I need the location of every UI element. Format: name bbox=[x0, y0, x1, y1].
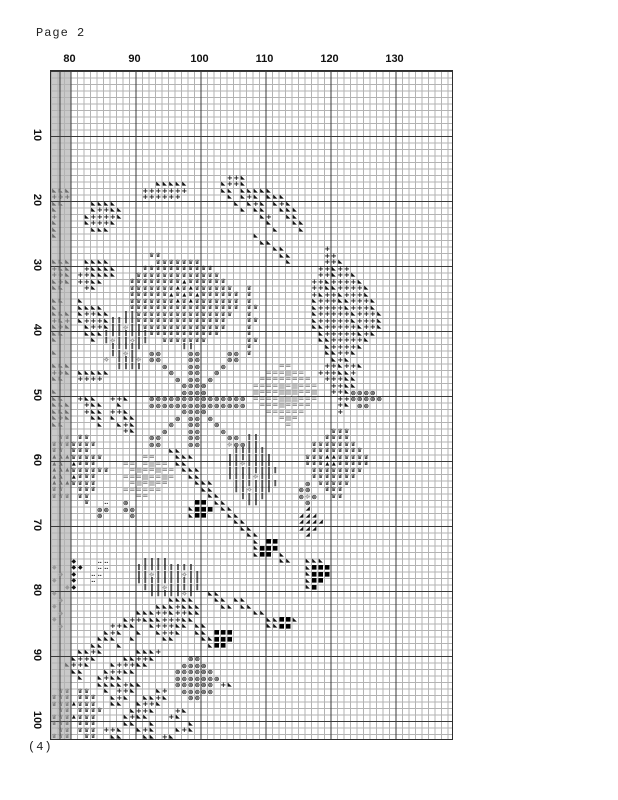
corner-triangle-stitch: ◣ bbox=[90, 396, 97, 403]
plus-stitch: + bbox=[324, 260, 331, 267]
crown-stitch: ♛ bbox=[305, 455, 312, 462]
corner-triangle-stitch: ◣ bbox=[149, 624, 156, 631]
plus-stitch: + bbox=[142, 188, 149, 195]
plus-stitch: + bbox=[350, 286, 357, 293]
ring-stitch: ⊚ bbox=[175, 396, 182, 403]
plus-stitch: + bbox=[77, 279, 84, 286]
crown-stitch: ♛ bbox=[188, 260, 195, 267]
corner-triangle-stitch: ◣ bbox=[188, 611, 195, 618]
corner-triangle-stitch: ◣ bbox=[129, 708, 136, 715]
corner-triangle-stitch: ◣ bbox=[149, 695, 156, 702]
hatched-square-stitch: ▦ bbox=[311, 390, 318, 397]
corner-triangle-stitch: ◣ bbox=[77, 370, 84, 377]
ring-stitch: ⊚ bbox=[194, 409, 201, 416]
equals-stitch: = bbox=[298, 396, 305, 403]
plus-stitch: + bbox=[344, 312, 351, 319]
double-bar-stitch: ‖ bbox=[253, 442, 260, 449]
crown-stitch: ♛ bbox=[168, 331, 175, 338]
solid-triangle-stitch: ▲ bbox=[194, 292, 201, 299]
corner-triangle-stitch: ◣ bbox=[181, 708, 188, 715]
corner-triangle-stitch: ◣ bbox=[311, 325, 318, 332]
corner-triangle-stitch: ◣ bbox=[331, 286, 338, 293]
ring-stitch: ⊚ bbox=[129, 513, 136, 520]
crown-stitch: ♛ bbox=[58, 695, 65, 702]
double-bar-stitch: ‖ bbox=[194, 585, 201, 592]
plus-stitch: + bbox=[116, 689, 123, 696]
corner-triangle-stitch: ◣ bbox=[103, 689, 110, 696]
ring-stitch: ⊚ bbox=[227, 435, 234, 442]
crown-stitch: ♛ bbox=[64, 708, 71, 715]
crown-stitch: ♛ bbox=[84, 448, 91, 455]
crown-stitch: ♛ bbox=[84, 689, 91, 696]
double-bar-stitch: ‖ bbox=[253, 461, 260, 468]
corner-triangle-stitch: ◣ bbox=[253, 533, 260, 540]
plus-stitch: + bbox=[123, 689, 130, 696]
crown-stitch: ♛ bbox=[337, 455, 344, 462]
double-bar-stitch: ‖ bbox=[266, 481, 273, 488]
crown-stitch: ♛ bbox=[58, 708, 65, 715]
corner-triangle-stitch: ◣ bbox=[51, 396, 58, 403]
corner-triangle-stitch: ◣ bbox=[175, 182, 182, 189]
crown-stitch: ♛ bbox=[201, 292, 208, 299]
crown-stitch: ♛ bbox=[155, 325, 162, 332]
corner-triangle-stitch: ◣ bbox=[110, 416, 117, 423]
corner-triangle-stitch: ◣ bbox=[259, 188, 266, 195]
ring-stitch: ⊚ bbox=[188, 689, 195, 696]
corner-triangle-stitch: ◣ bbox=[272, 247, 279, 254]
crown-stitch: ♛ bbox=[51, 721, 58, 728]
crown-stitch: ♛ bbox=[181, 338, 188, 345]
sun-stitch: ☼ bbox=[136, 357, 143, 364]
plus-stitch: + bbox=[357, 338, 364, 345]
solid-triangle-stitch: ▲ bbox=[181, 292, 188, 299]
corner-triangle-stitch: ◣ bbox=[201, 481, 208, 488]
crown-stitch: ♛ bbox=[51, 448, 58, 455]
corner-triangle-stitch: ◣ bbox=[71, 656, 78, 663]
row-label: 80 bbox=[31, 584, 43, 596]
corner-triangle-stitch: ◣ bbox=[298, 221, 305, 228]
crown-stitch: ♛ bbox=[337, 474, 344, 481]
solid-triangle-stitch: ▲ bbox=[188, 299, 195, 306]
corner-triangle-stitch: ◣ bbox=[51, 260, 58, 267]
crown-stitch: ♛ bbox=[201, 286, 208, 293]
corner-triangle-stitch: ◣ bbox=[220, 182, 227, 189]
double-bar-stitch: ‖ bbox=[155, 565, 162, 572]
corner-triangle-stitch: ◣ bbox=[149, 734, 156, 741]
gray-diamond-stitch: ◆ bbox=[58, 598, 65, 605]
corner-triangle-stitch: ◣ bbox=[227, 507, 234, 514]
corner-triangle-stitch: ◣ bbox=[64, 403, 71, 410]
equals-stitch: = bbox=[266, 409, 273, 416]
corner-triangle-stitch: ◣ bbox=[77, 305, 84, 312]
equals-stitch: = bbox=[253, 383, 260, 390]
double-bar-stitch: ‖ bbox=[129, 357, 136, 364]
corner-triangle-stitch: ◣ bbox=[331, 357, 338, 364]
plus-stitch: + bbox=[318, 266, 325, 273]
ring-stitch: ⊚ bbox=[350, 390, 357, 397]
corner-triangle-stitch: ◣ bbox=[123, 715, 130, 722]
corner-triangle-stitch: ◣ bbox=[266, 188, 273, 195]
crown-stitch: ♛ bbox=[207, 286, 214, 293]
plus-stitch: + bbox=[162, 617, 169, 624]
corner-triangle-stitch: ◣ bbox=[259, 240, 266, 247]
corner-triangle-stitch: ◣ bbox=[318, 331, 325, 338]
plus-stitch: + bbox=[337, 305, 344, 312]
plus-stitch: + bbox=[344, 396, 351, 403]
plus-stitch: + bbox=[58, 325, 65, 332]
plus-stitch: + bbox=[116, 409, 123, 416]
corner-triangle-stitch: ◣ bbox=[116, 728, 123, 735]
corner-triangle-stitch: ◣ bbox=[155, 689, 162, 696]
double-bar-stitch: ‖ bbox=[168, 585, 175, 592]
gray-diamond-stitch: ◆ bbox=[51, 617, 58, 624]
double-bar-stitch: ‖ bbox=[110, 351, 117, 358]
crown-stitch: ♛ bbox=[331, 429, 338, 436]
plus-stitch: + bbox=[77, 656, 84, 663]
crown-stitch: ♛ bbox=[97, 468, 104, 475]
crown-stitch: ♛ bbox=[305, 461, 312, 468]
ring-stitch: ⊚ bbox=[220, 403, 227, 410]
black-square-stitch: ■ bbox=[259, 552, 266, 559]
hatched-square-stitch: ▦ bbox=[285, 416, 292, 423]
plus-stitch: + bbox=[344, 266, 351, 273]
corner-triangle-stitch: ◣ bbox=[142, 715, 149, 722]
ring-stitch: ⊚ bbox=[220, 429, 227, 436]
plus-stitch: + bbox=[129, 617, 136, 624]
corner-triangle2-stitch: ◢ bbox=[298, 520, 305, 527]
sun-stitch: ☼ bbox=[227, 442, 234, 449]
solid-triangle-stitch: ▲ bbox=[168, 292, 175, 299]
corner-triangle-stitch: ◣ bbox=[324, 279, 331, 286]
crown-stitch: ♛ bbox=[51, 442, 58, 449]
corner-triangle-stitch: ◣ bbox=[285, 208, 292, 215]
plus-stitch: + bbox=[324, 370, 331, 377]
corner-triangle-stitch: ◣ bbox=[116, 734, 123, 741]
crown-stitch: ♛ bbox=[188, 338, 195, 345]
ring-stitch: ⊚ bbox=[194, 357, 201, 364]
plus-stitch: + bbox=[97, 325, 104, 332]
equals-stitch: = bbox=[129, 487, 136, 494]
crown-stitch: ♛ bbox=[64, 689, 71, 696]
corner-triangle-stitch: ◣ bbox=[97, 643, 104, 650]
corner-triangle-stitch: ◣ bbox=[240, 208, 247, 215]
ring-stitch: ⊚ bbox=[97, 513, 104, 520]
corner-triangle-stitch: ◣ bbox=[272, 201, 279, 208]
corner-triangle-stitch: ◣ bbox=[227, 195, 234, 202]
crown-stitch: ♛ bbox=[246, 351, 253, 358]
plus-stitch: + bbox=[97, 377, 104, 384]
crown-stitch: ♛ bbox=[168, 260, 175, 267]
corner-triangle-stitch: ◣ bbox=[305, 572, 312, 579]
corner-triangle-stitch: ◣ bbox=[51, 299, 58, 306]
corner-triangle-stitch: ◣ bbox=[305, 585, 312, 592]
equals-stitch: = bbox=[123, 487, 130, 494]
corner-triangle-stitch: ◣ bbox=[168, 611, 175, 618]
ring-stitch: ⊚ bbox=[194, 370, 201, 377]
plus-stitch: + bbox=[84, 318, 91, 325]
corner-triangle-stitch: ◣ bbox=[136, 682, 143, 689]
crown-stitch: ♛ bbox=[90, 734, 97, 741]
row-label: 100 bbox=[31, 711, 43, 729]
solid-triangle-stitch: ▲ bbox=[175, 286, 182, 293]
plus-stitch: + bbox=[337, 357, 344, 364]
crown-stitch: ♛ bbox=[207, 305, 214, 312]
double-bar-stitch: ‖ bbox=[142, 559, 149, 566]
ring-stitch: ⊚ bbox=[188, 663, 195, 670]
corner-triangle-stitch: ◣ bbox=[194, 630, 201, 637]
corner-triangle-stitch: ◣ bbox=[110, 663, 117, 670]
ring-stitch: ⊚ bbox=[155, 442, 162, 449]
crown-stitch: ♛ bbox=[175, 338, 182, 345]
double-bar-stitch: ‖ bbox=[149, 591, 156, 598]
corner-triangle-stitch: ◣ bbox=[103, 266, 110, 273]
crown-stitch: ♛ bbox=[71, 448, 78, 455]
crown-stitch: ♛ bbox=[58, 435, 65, 442]
diamond-stitch: ◆ bbox=[71, 565, 78, 572]
corner-triangle-stitch: ◣ bbox=[175, 455, 182, 462]
crown-stitch: ♛ bbox=[51, 494, 58, 501]
corner-triangle-stitch: ◣ bbox=[123, 416, 130, 423]
plus-stitch: + bbox=[350, 364, 357, 371]
double-bar-stitch: ‖ bbox=[162, 591, 169, 598]
plus-stitch: + bbox=[155, 695, 162, 702]
corner-triangle-stitch: ◣ bbox=[110, 702, 117, 709]
corner-triangle-stitch: ◣ bbox=[207, 487, 214, 494]
equals-stitch: = bbox=[266, 390, 273, 397]
crown-stitch: ♛ bbox=[64, 721, 71, 728]
crown-stitch: ♛ bbox=[214, 325, 221, 332]
crown-stitch: ♛ bbox=[64, 435, 71, 442]
crown-stitch: ♛ bbox=[71, 468, 78, 475]
equals-stitch: = bbox=[279, 364, 286, 371]
equals-stitch: = bbox=[129, 461, 136, 468]
corner-triangle-stitch: ◣ bbox=[84, 221, 91, 228]
crown-stitch: ♛ bbox=[227, 286, 234, 293]
crown-stitch: ♛ bbox=[344, 468, 351, 475]
ring-stitch: ⊚ bbox=[357, 390, 364, 397]
corner-triangle-stitch: ◣ bbox=[331, 351, 338, 358]
crown-stitch: ♛ bbox=[136, 286, 143, 293]
crown-stitch: ♛ bbox=[214, 273, 221, 280]
corner-triangle-stitch: ◣ bbox=[324, 351, 331, 358]
plus-stitch: + bbox=[331, 299, 338, 306]
crown-stitch: ♛ bbox=[194, 325, 201, 332]
corner-triangle-stitch: ◣ bbox=[97, 422, 104, 429]
corner-triangle-stitch: ◣ bbox=[181, 617, 188, 624]
double-bar-stitch: ‖ bbox=[266, 455, 273, 462]
crown-stitch: ♛ bbox=[188, 318, 195, 325]
corner-triangle-stitch: ◣ bbox=[103, 682, 110, 689]
crown-stitch: ♛ bbox=[194, 305, 201, 312]
corner-triangle-stitch: ◣ bbox=[350, 312, 357, 319]
column-label: 100 bbox=[190, 53, 208, 65]
corner-triangle2-stitch: ◢ bbox=[298, 513, 305, 520]
plus-stitch: + bbox=[110, 214, 117, 221]
corner-triangle-stitch: ◣ bbox=[129, 637, 136, 644]
corner-triangle-stitch: ◣ bbox=[129, 721, 136, 728]
corner-triangle-stitch: ◣ bbox=[201, 637, 208, 644]
hatched-square-stitch: ▦ bbox=[292, 396, 299, 403]
corner-triangle-stitch: ◣ bbox=[90, 279, 97, 286]
column-label: 130 bbox=[385, 53, 403, 65]
double-bar-stitch: ‖ bbox=[259, 474, 266, 481]
ring-stitch: ⊚ bbox=[363, 403, 370, 410]
page-footer: (4) bbox=[28, 740, 53, 754]
corner-triangle-stitch: ◣ bbox=[253, 552, 260, 559]
double-bar-stitch: ‖ bbox=[136, 331, 143, 338]
crown-stitch: ♛ bbox=[227, 292, 234, 299]
corner-triangle-stitch: ◣ bbox=[116, 643, 123, 650]
plus-stitch: + bbox=[337, 396, 344, 403]
crown-stitch: ♛ bbox=[194, 331, 201, 338]
double-bar-stitch: ‖ bbox=[168, 578, 175, 585]
sun-stitch: ☼ bbox=[162, 585, 169, 592]
ring-stitch: ⊚ bbox=[129, 507, 136, 514]
corner-triangle-stitch: ◣ bbox=[370, 305, 377, 312]
double-bar-stitch: ‖ bbox=[188, 578, 195, 585]
ring-stitch: ⊚ bbox=[149, 435, 156, 442]
equals-stitch: = bbox=[272, 370, 279, 377]
equals-stitch: = bbox=[129, 481, 136, 488]
solid-triangle-stitch: ▲ bbox=[51, 481, 58, 488]
gray-diamond-stitch: ◆ bbox=[51, 578, 58, 585]
double-bar-stitch: ‖ bbox=[123, 318, 130, 325]
corner-triangle-stitch: ◣ bbox=[175, 598, 182, 605]
plus-stitch: + bbox=[331, 312, 338, 319]
plus-stitch: + bbox=[168, 715, 175, 722]
corner-triangle-stitch: ◣ bbox=[344, 305, 351, 312]
plus-stitch: + bbox=[344, 318, 351, 325]
corner-triangle-stitch: ◣ bbox=[272, 227, 279, 234]
double-bar-stitch: ‖ bbox=[253, 468, 260, 475]
plus-stitch: + bbox=[331, 377, 338, 384]
crown-stitch: ♛ bbox=[331, 474, 338, 481]
crown-stitch: ♛ bbox=[162, 299, 169, 306]
equals-stitch: = bbox=[129, 474, 136, 481]
corner-triangle-stitch: ◣ bbox=[253, 539, 260, 546]
ring-stitch: ⊚ bbox=[181, 403, 188, 410]
corner-triangle-stitch: ◣ bbox=[181, 604, 188, 611]
equals-stitch: = bbox=[259, 403, 266, 410]
crown-stitch: ♛ bbox=[77, 702, 84, 709]
ring-stitch: ⊚ bbox=[188, 422, 195, 429]
corner-triangle-stitch: ◣ bbox=[207, 637, 214, 644]
equals-stitch: = bbox=[259, 377, 266, 384]
crown-stitch: ♛ bbox=[357, 461, 364, 468]
plus-stitch: + bbox=[175, 604, 182, 611]
double-bar-stitch: ‖ bbox=[155, 572, 162, 579]
double-dot-stitch: ‥ bbox=[103, 565, 110, 572]
plus-stitch: + bbox=[357, 299, 364, 306]
plus-stitch: + bbox=[324, 305, 331, 312]
crown-stitch: ♛ bbox=[162, 318, 169, 325]
solid-triangle-stitch: ▲ bbox=[58, 468, 65, 475]
corner-triangle-stitch: ◣ bbox=[344, 299, 351, 306]
crown-stitch: ♛ bbox=[201, 325, 208, 332]
plus-stitch: + bbox=[337, 273, 344, 280]
double-dot-stitch: ‥ bbox=[90, 572, 97, 579]
crown-stitch: ♛ bbox=[194, 286, 201, 293]
corner-triangle-stitch: ◣ bbox=[90, 201, 97, 208]
corner-triangle-stitch: ◣ bbox=[285, 260, 292, 267]
corner-triangle-stitch: ◣ bbox=[266, 221, 273, 228]
equals-stitch: = bbox=[155, 461, 162, 468]
plus-stitch: + bbox=[324, 266, 331, 273]
corner-triangle-stitch: ◣ bbox=[214, 598, 221, 605]
crown-stitch: ♛ bbox=[246, 312, 253, 319]
double-bar-stitch: ‖ bbox=[194, 578, 201, 585]
ring-stitch: ⊚ bbox=[298, 494, 305, 501]
corner-triangle-stitch: ◣ bbox=[259, 201, 266, 208]
corner-triangle-stitch: ◣ bbox=[188, 721, 195, 728]
crown-stitch: ♛ bbox=[331, 481, 338, 488]
crown-stitch: ♛ bbox=[64, 442, 71, 449]
corner-triangle-stitch: ◣ bbox=[370, 331, 377, 338]
equals-stitch: = bbox=[168, 468, 175, 475]
ring-stitch: ⊚ bbox=[194, 663, 201, 670]
corner-triangle-stitch: ◣ bbox=[90, 266, 97, 273]
corner-triangle-stitch: ◣ bbox=[298, 227, 305, 234]
corner-triangle-stitch: ◣ bbox=[51, 416, 58, 423]
crown-stitch: ♛ bbox=[357, 455, 364, 462]
gray-diamond-stitch: ◆ bbox=[58, 624, 65, 631]
double-bar-stitch: ‖ bbox=[259, 468, 266, 475]
crown-stitch: ♛ bbox=[181, 273, 188, 280]
hatched-square-stitch: ▦ bbox=[285, 390, 292, 397]
black-square-stitch: ■ bbox=[318, 578, 325, 585]
plus-stitch: + bbox=[58, 273, 65, 280]
corner-triangle-stitch: ◣ bbox=[103, 273, 110, 280]
crown-stitch: ♛ bbox=[188, 279, 195, 286]
crown-stitch: ♛ bbox=[142, 286, 149, 293]
ring-stitch: ⊚ bbox=[227, 403, 234, 410]
corner-triangle-stitch: ◣ bbox=[337, 364, 344, 371]
black-square-stitch: ■ bbox=[201, 513, 208, 520]
plus-stitch: + bbox=[103, 208, 110, 215]
plus-stitch: + bbox=[337, 286, 344, 293]
double-dot-stitch: ‥ bbox=[97, 559, 104, 566]
double-bar-stitch: ‖ bbox=[168, 591, 175, 598]
plus-stitch: + bbox=[279, 201, 286, 208]
plus-stitch: + bbox=[337, 409, 344, 416]
corner-triangle-stitch: ◣ bbox=[240, 175, 247, 182]
crown-stitch: ♛ bbox=[194, 273, 201, 280]
corner-triangle-stitch: ◣ bbox=[116, 422, 123, 429]
ring-stitch: ⊚ bbox=[194, 442, 201, 449]
black-square-stitch: ■ bbox=[214, 637, 221, 644]
corner-triangle-stitch: ◣ bbox=[90, 370, 97, 377]
crown-stitch: ♛ bbox=[331, 468, 338, 475]
equals-stitch: = bbox=[285, 377, 292, 384]
corner-triangle-stitch: ◣ bbox=[305, 559, 312, 566]
ring-stitch: ⊚ bbox=[194, 689, 201, 696]
plus-stitch: + bbox=[58, 416, 65, 423]
plus-stitch: + bbox=[318, 318, 325, 325]
corner-triangle-stitch: ◣ bbox=[194, 624, 201, 631]
corner-triangle-stitch: ◣ bbox=[357, 364, 364, 371]
plus-stitch: + bbox=[175, 195, 182, 202]
ring-stitch: ⊚ bbox=[97, 507, 104, 514]
ring-stitch: ⊚ bbox=[103, 507, 110, 514]
ring-stitch: ⊚ bbox=[201, 676, 208, 683]
plus-stitch: + bbox=[331, 318, 338, 325]
double-bar-stitch: ‖ bbox=[175, 578, 182, 585]
corner-triangle-stitch: ◣ bbox=[311, 318, 318, 325]
corner-triangle-stitch: ◣ bbox=[279, 195, 286, 202]
crown-stitch: ♛ bbox=[311, 448, 318, 455]
plus-stitch: + bbox=[337, 390, 344, 397]
corner-triangle-stitch: ◣ bbox=[253, 546, 260, 553]
